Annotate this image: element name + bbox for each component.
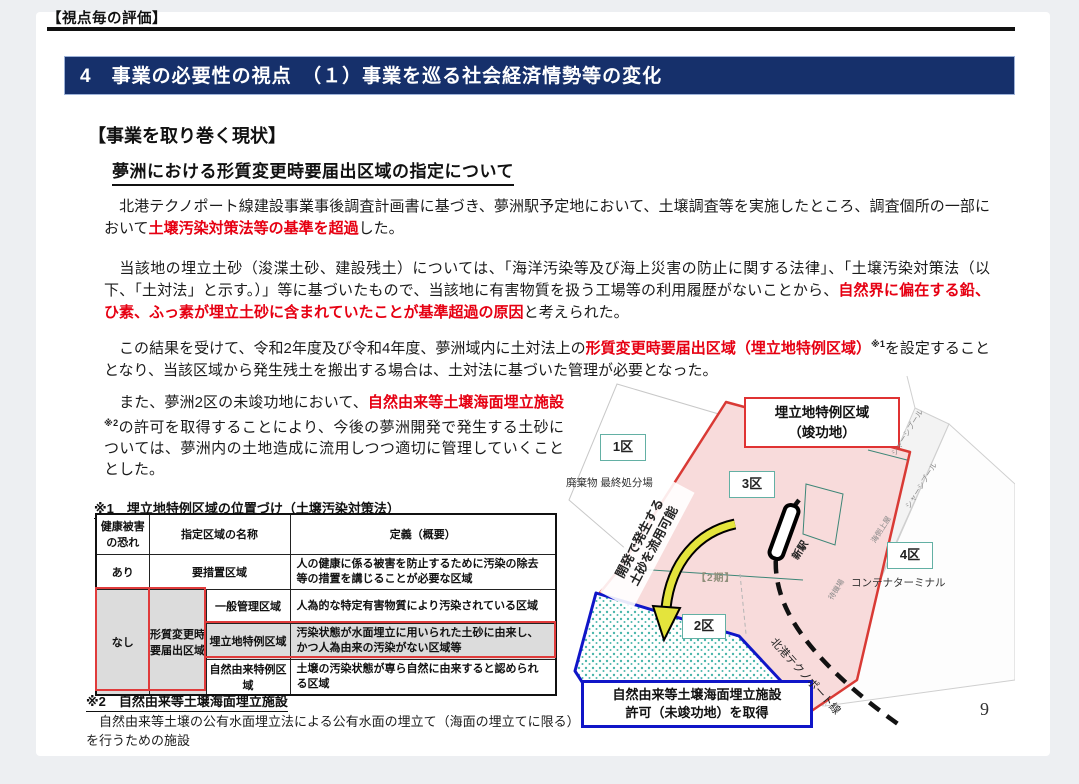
callout-reclaimed-zone: 埋立地特例区域 （竣功地） [744, 397, 900, 448]
p3-red-emphasis: 形質変更時要届出区域（埋立地特例区域） [586, 340, 871, 357]
p1-post: した。 [359, 220, 404, 237]
subsection-title: 夢洲における形質変更時要届出区域の指定について [112, 157, 514, 186]
cell-name-shizen: 自然由来特例区域 [206, 659, 290, 695]
table-row: なし 形質変更時要届出区域 一般管理区域 人為的な特定有害物質により汚染されてい… [96, 589, 556, 623]
zone-box-district1: 1区 [600, 434, 646, 461]
callout-natural-line1: 自然由来等土壌海面埋立施設 [612, 687, 781, 702]
current-status-heading: 【事業を取り巻く現状】 [88, 122, 286, 148]
map-note-container-terminal: コンテナターミナル [851, 575, 946, 590]
callout-natural-soil-zone: 自然由来等土壌海面埋立施設 許可（未竣功地）を取得 [581, 680, 813, 728]
callout-reclaimed-line2: （竣功地） [788, 425, 856, 440]
header-name: 指定区域の名称 [149, 514, 290, 554]
p3-footnote-marker: ※1 [871, 339, 885, 349]
note2-body: 自然由来等土壌の公有水面埋立法による公有水面の埋立て（海面の埋立てに限る）を行う… [86, 712, 586, 750]
note2-caption: ※2 自然由来等土壌海面埋立施設 [86, 691, 288, 712]
paragraph-cause: 当該地の埋立土砂（浚渫土砂、建設残土）については、「海洋汚染等及び海上災害の防止… [104, 258, 990, 324]
cell-def-yosochi: 人の健康に係る被害を防止するために汚染の除去等の措置を講じることが必要な区域 [290, 554, 556, 589]
page-number: 9 [980, 699, 989, 720]
paragraph-permit: また、夢洲2区の未竣功地において、自然由来等土壌海面埋立施設※2の許可を取得する… [104, 392, 564, 480]
table-header-row: 健康被害の恐れ 指定区域の名称 定義（概要） [96, 514, 556, 554]
cell-name-yosochi: 要措置区域 [149, 554, 290, 589]
cell-def-shizen: 土壌の汚染状態が専ら自然に由来すると認められる区域 [290, 659, 556, 695]
cell-risk-ari: あり [96, 554, 149, 589]
kicker-label: 【視点毎の評価】 [47, 7, 167, 28]
p4-red-emphasis: 自然由来等土壌海面埋立施設 [368, 394, 564, 411]
zone-box-district2: 2区 [682, 614, 726, 639]
callout-reclaimed-line1: 埋立地特例区域 [775, 405, 870, 420]
slide-page: 【視点毎の評価】 4 事業の必要性の視点 （１）事業を巡る社会経済情勢等の変化 … [0, 0, 1079, 784]
p2-post: と考えられた。 [524, 304, 629, 321]
paragraph-soil-survey: 北港テクノポート線建設事業事後調査計画書に基づき、夢洲駅予定地において、土壌調査… [104, 196, 990, 240]
map-minor-road-line [907, 376, 915, 408]
p4-pre: また、夢洲2区の未竣功地において、 [104, 394, 368, 411]
p4-footnote-marker: ※2 [104, 418, 118, 428]
map-note-waste-site: 廃棄物 最終処分場 [566, 475, 653, 490]
cell-risk-nashi: なし [96, 589, 149, 695]
p1-red-emphasis: 土壌汚染対策法等の基準を超過 [149, 220, 359, 237]
cell-name-ippan: 一般管理区域 [206, 589, 290, 623]
cell-name-umetate: 埋立地特例区域 [206, 623, 290, 659]
designated-area-table: 健康被害の恐れ 指定区域の名称 定義（概要） あり 要措置区域 人の健康に係る被… [95, 513, 557, 696]
cell-group-keishitsu: 形質変更時要届出区域 [149, 589, 206, 695]
zone-box-district3: 3区 [729, 471, 775, 498]
cell-def-ippan: 人為的な特定有害物質により汚染されている区域 [290, 589, 556, 623]
header-def: 定義（概要） [290, 514, 556, 554]
table-row: あり 要措置区域 人の健康に係る被害を防止するために汚染の除去等の措置を講じるこ… [96, 554, 556, 589]
yumeshima-map: 1区 3区 4区 2区 廃棄物 最終処分場 コンテナターミナル 【2期】 埋立地… [563, 372, 1015, 744]
p3-pre: この結果を受けて、令和2年度及び令和4年度、夢洲域内に土対法上の [104, 340, 586, 357]
map-note-phase2: 【2期】 [696, 569, 736, 584]
cell-def-umetate: 汚染状態が水面埋立に用いられた土砂に由来し、かつ人為由来の汚染がない区域等 [290, 623, 556, 659]
top-rule [47, 27, 1015, 31]
callout-natural-line2: 許可（未竣功地）を取得 [625, 705, 768, 720]
p4-post: の許可を取得することにより、今後の夢洲開発で発生する土砂については、夢洲内の土地… [104, 419, 564, 478]
section-banner: 4 事業の必要性の視点 （１）事業を巡る社会経済情勢等の変化 [64, 56, 1015, 95]
header-risk: 健康被害の恐れ [96, 514, 149, 554]
zone-box-district4: 4区 [887, 542, 933, 569]
